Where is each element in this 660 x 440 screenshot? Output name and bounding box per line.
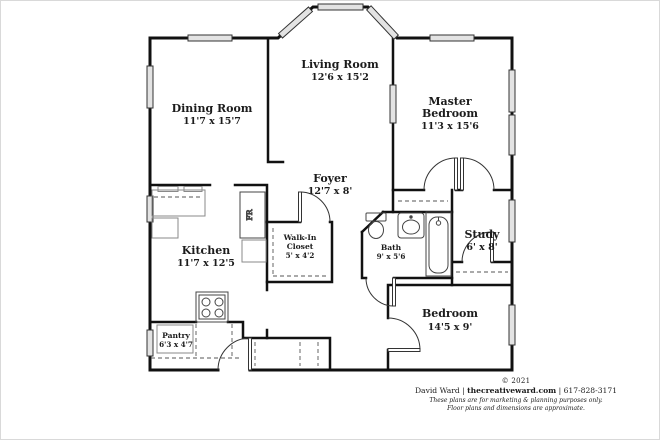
bathtub xyxy=(426,212,451,276)
credit-separator: | xyxy=(559,386,562,395)
svg-text:14'5 x 9': 14'5 x 9' xyxy=(428,322,473,333)
room-label-walkin-closet: Walk-In Closet 5' x 4'2 xyxy=(283,233,317,260)
credit-site: thecreativeward.com xyxy=(467,386,556,395)
credit-owner: David Ward xyxy=(415,386,460,395)
svg-text:Bath: Bath xyxy=(381,243,402,252)
sink xyxy=(398,213,424,238)
door-arc xyxy=(366,278,394,306)
credit-phone: 617-828-3171 xyxy=(564,386,617,395)
door-arc xyxy=(388,318,420,350)
credit-line: David Ward | thecreativeward.com | 617-8… xyxy=(376,386,656,395)
counter xyxy=(242,240,266,262)
disclaimer-line-2: Floor plans and dimensions are approxima… xyxy=(376,405,656,413)
svg-text:Foyer: Foyer xyxy=(313,172,347,185)
floor-plan-canvas: FR Living Room 12'6 x xyxy=(0,0,660,440)
window xyxy=(279,7,313,38)
room-label-master-bedroom: Master Bedroom 11'3 x 15'6 xyxy=(421,95,479,132)
door-leaf xyxy=(249,338,252,370)
window xyxy=(509,305,515,345)
stove xyxy=(196,292,228,322)
credit-separator: | xyxy=(462,386,465,395)
room-label-living-room: Living Room 12'6 x 15'2 xyxy=(301,58,379,83)
upper-cabinet xyxy=(158,187,178,192)
svg-text:5' x 4'2: 5' x 4'2 xyxy=(286,251,315,260)
door-arc xyxy=(424,158,456,190)
toilet xyxy=(366,213,386,239)
svg-text:Living Room: Living Room xyxy=(301,58,379,71)
door-leaf xyxy=(388,349,420,352)
svg-text:Bedroom: Bedroom xyxy=(422,107,478,120)
wall-panel xyxy=(390,85,396,123)
svg-text:Walk-In: Walk-In xyxy=(283,233,317,242)
door-leaf xyxy=(299,192,302,222)
window xyxy=(509,115,515,155)
counter xyxy=(152,218,178,238)
svg-text:6'3 x 4'7: 6'3 x 4'7 xyxy=(159,340,193,349)
door-arc xyxy=(218,338,250,370)
window xyxy=(367,6,399,39)
window xyxy=(509,70,515,112)
refrigerator-label: FR xyxy=(245,209,254,220)
disclaimer-line-1: These plans are for marketing & planning… xyxy=(376,397,656,405)
door-arc xyxy=(462,158,494,190)
window xyxy=(188,35,232,41)
svg-text:6' x 8': 6' x 8' xyxy=(466,242,497,253)
room-label-bedroom: Bedroom 14'5 x 9' xyxy=(422,307,478,333)
door-leaf xyxy=(393,278,396,306)
room-label-kitchen: Kitchen 11'7 x 12'5 xyxy=(177,244,235,269)
svg-text:Dining Room: Dining Room xyxy=(172,102,253,115)
window xyxy=(509,200,515,242)
svg-text:Study: Study xyxy=(464,228,500,241)
room-label-study: Study 6' x 8' xyxy=(464,228,500,253)
svg-text:9' x 5'6: 9' x 5'6 xyxy=(377,252,406,261)
hall-closet-dash xyxy=(255,342,318,366)
dining-living-wall xyxy=(268,38,283,162)
svg-text:Pantry: Pantry xyxy=(162,331,190,340)
credit-block: © 2021 David Ward | thecreativeward.com … xyxy=(376,377,656,412)
svg-text:11'7 x 12'5: 11'7 x 12'5 xyxy=(177,258,235,269)
room-labels: Living Room 12'6 x 15'2 Dining Room 11'7… xyxy=(159,58,500,349)
room-label-pantry: Pantry 6'3 x 4'7 xyxy=(159,331,193,349)
upper-cabinet xyxy=(184,187,202,192)
svg-text:Kitchen: Kitchen xyxy=(182,244,231,257)
svg-text:11'7 x 15'7: 11'7 x 15'7 xyxy=(183,116,241,127)
room-label-bath: Bath 9' x 5'6 xyxy=(377,243,406,261)
svg-text:12'7 x 8': 12'7 x 8' xyxy=(308,186,353,197)
window xyxy=(318,4,363,10)
door-leaf xyxy=(461,158,464,190)
svg-text:11'3 x 15'6: 11'3 x 15'6 xyxy=(421,121,479,132)
svg-text:12'6 x 15'2: 12'6 x 15'2 xyxy=(311,72,369,83)
interior-walls xyxy=(150,38,512,370)
svg-text:Bedroom: Bedroom xyxy=(422,307,478,320)
room-label-dining-room: Dining Room 11'7 x 15'7 xyxy=(172,102,253,127)
window xyxy=(147,330,153,356)
door-leaf xyxy=(455,158,458,190)
disclaimer: These plans are for marketing & planning… xyxy=(376,397,656,412)
counter xyxy=(152,190,205,216)
window xyxy=(430,35,474,41)
svg-text:Closet: Closet xyxy=(287,242,314,251)
copyright-text: © 2021 xyxy=(376,377,656,385)
window xyxy=(147,66,153,108)
room-label-foyer: Foyer 12'7 x 8' xyxy=(308,172,353,197)
